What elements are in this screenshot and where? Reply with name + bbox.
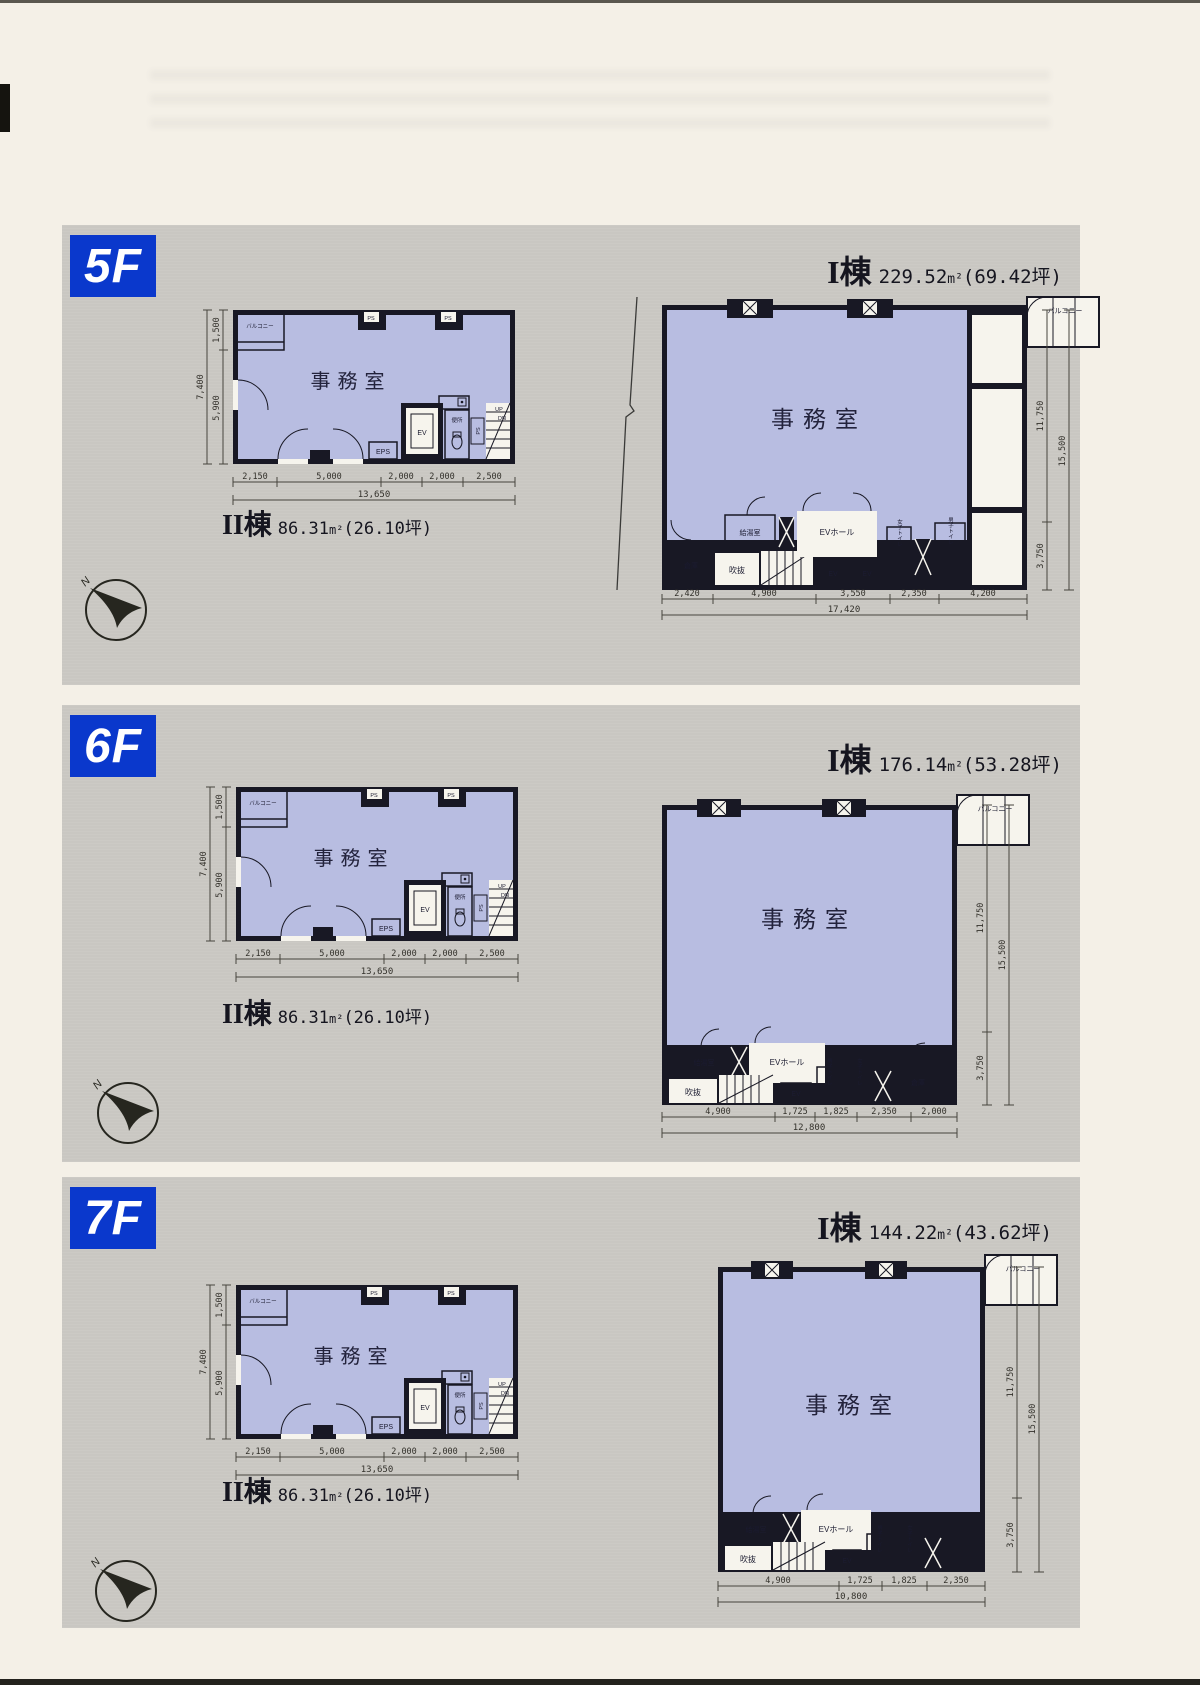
stairs <box>773 1542 825 1570</box>
elevator: EV <box>404 1378 446 1434</box>
elevator: EV <box>833 1550 861 1570</box>
compass-icon: N <box>90 1073 166 1149</box>
svg-text:2,500: 2,500 <box>479 949 505 959</box>
balcony-label: バルコニー <box>246 323 273 330</box>
dim-b2: 4,900 <box>751 589 777 599</box>
svg-text:EVホール: EVホール <box>819 1525 854 1534</box>
print-showthrough <box>150 58 1050 128</box>
dim-b5: 2,500 <box>476 472 502 482</box>
shaft-1 <box>779 517 794 547</box>
dim-left-5900: 5,900 <box>215 872 225 898</box>
elevator: EV <box>401 403 443 459</box>
right-room-3 <box>972 513 1022 585</box>
svg-text:PS: PS <box>479 1402 485 1410</box>
svg-text:給湯室: 給湯室 <box>694 1058 715 1067</box>
svg-text:1,500: 1,500 <box>215 1292 225 1318</box>
svg-text:2,500: 2,500 <box>479 1447 505 1457</box>
balcony-label: バルコニー <box>249 1298 276 1305</box>
ps-duct-1: PS <box>358 310 386 330</box>
shaft-2 <box>875 1071 891 1101</box>
svg-text:EVホール: EVホール <box>770 1058 805 1067</box>
floor-badge-7f: 7F <box>70 1187 156 1249</box>
svg-text:DN: DN <box>501 1391 509 1397</box>
wing2-area-unit: m² <box>329 523 343 537</box>
svg-text:EV: EV <box>791 1091 801 1098</box>
svg-text:2,150: 2,150 <box>245 1447 271 1457</box>
svg-text:EV: EV <box>862 571 872 578</box>
right-room-1 <box>972 315 1022 383</box>
svg-text:1,725: 1,725 <box>782 1107 808 1117</box>
vent-2 <box>822 799 866 817</box>
dim-b-total: 17,420 <box>828 605 861 615</box>
wing2-name: II棟 <box>222 510 272 541</box>
vent-2 <box>865 1261 907 1279</box>
svg-text:UP: UP <box>498 1382 506 1388</box>
wing1-floorplan-6f: バルコニー 事務室 給湯室 EVホール 吹抜 <box>567 755 1067 1140</box>
dim-b4: 2,000 <box>429 472 455 482</box>
svg-text:EPS: EPS <box>379 926 393 933</box>
office-label: 事務室 <box>761 906 857 932</box>
svg-text:4,900: 4,900 <box>765 1576 791 1586</box>
void-room: 吹抜 <box>715 553 759 585</box>
svg-text:7,400: 7,400 <box>199 1349 209 1375</box>
svg-text:PS: PS <box>479 904 485 912</box>
svg-text:EVホール: EVホール <box>820 528 855 537</box>
svg-text:PS: PS <box>367 316 375 322</box>
dim-left-5900: 5,900 <box>212 395 222 421</box>
page-bottom-edge <box>0 1679 1200 1685</box>
svg-text:13,650: 13,650 <box>361 967 394 977</box>
dim-b5: 4,200 <box>970 589 996 599</box>
wing2-area: 86.31 <box>278 519 329 539</box>
stairs: UP DN <box>489 1378 513 1434</box>
wing2-caption-5f: II棟86.31m²(26.10坪) <box>222 503 432 543</box>
balcony: バルコニー <box>1027 297 1099 347</box>
dim-b1: 2,420 <box>674 589 700 599</box>
vent-1 <box>697 799 741 817</box>
svg-text:便所: 便所 <box>451 416 463 424</box>
void-room: 吹抜 <box>725 1546 771 1570</box>
svg-text:EV: EV <box>842 1558 852 1565</box>
ps-duct-2: PS <box>438 787 466 807</box>
elevator: EV <box>404 880 446 936</box>
svg-text:2,000: 2,000 <box>391 1447 417 1457</box>
svg-text:EV: EV <box>420 1405 430 1412</box>
svg-text:PS: PS <box>447 793 455 799</box>
svg-text:PS: PS <box>476 427 482 435</box>
wing2-floorplan-6f: 1,500 5,900 7,400 バルコニー PS PS 事務室 <box>186 779 531 1014</box>
stairs: UP DN <box>486 403 510 459</box>
svg-text:5,000: 5,000 <box>319 1447 345 1457</box>
svg-text:EV: EV <box>417 430 427 437</box>
ps-duct-1: PS <box>361 787 389 807</box>
dim-left-1500: 1,500 <box>212 317 222 343</box>
balcony-label: バルコニー <box>978 805 1013 813</box>
dim-b2: 5,000 <box>316 472 342 482</box>
wing2-caption-7f: II棟86.31m²(26.10坪) <box>222 1470 432 1510</box>
shaft-1 <box>731 1047 747 1077</box>
svg-text:吹抜: 吹抜 <box>729 565 745 575</box>
office-label: 事務室 <box>311 370 392 393</box>
floor-panel-5f: 5F 1,500 5,900 7,400 バルコニー PS PS 事務室 <box>62 225 1080 685</box>
svg-text:給湯室: 給湯室 <box>746 1525 767 1534</box>
dim-left-7400: 7,400 <box>199 851 209 877</box>
dim-r1: 11,750 <box>1036 401 1046 432</box>
ps-duct-2: PS <box>435 310 463 330</box>
svg-text:吹抜: 吹抜 <box>685 1087 701 1097</box>
svg-text:11,750: 11,750 <box>976 903 986 934</box>
dim-b4: 2,350 <box>901 589 927 599</box>
svg-text:2,000: 2,000 <box>432 1447 458 1457</box>
vent-1 <box>727 299 773 318</box>
svg-text:男子トイレ: 男子トイレ <box>947 517 954 545</box>
svg-text:11,750: 11,750 <box>1006 1367 1016 1398</box>
compass-icon: N <box>88 1551 164 1627</box>
floor-badge-6f: 6F <box>70 715 156 777</box>
floor-panel-7f: 7F 1,500 5,900 7,400 バルコニー PS PS 事務室 <box>62 1177 1080 1628</box>
wing2-caption-6f: II棟86.31m²(26.10坪) <box>222 992 432 1032</box>
site-boundary <box>617 297 637 590</box>
dim-b3: 2,000 <box>388 472 414 482</box>
dim-b3: 3,550 <box>840 589 866 599</box>
elevator-2: EV <box>853 559 881 585</box>
svg-text:2,000: 2,000 <box>432 949 458 959</box>
svg-text:UP: UP <box>498 884 506 890</box>
stairs-up-label: UP <box>495 407 503 413</box>
dim-left-1500: 1,500 <box>215 794 225 820</box>
wing1-floorplan-7f: バルコニー 事務室 給湯室 EVホール 吹抜 <box>613 1217 1113 1607</box>
wing1-floorplan-5f: バルコニー 事務室 倉庫 吹抜 給湯室 <box>607 255 1107 625</box>
page-left-notch <box>0 84 10 132</box>
svg-text:12,800: 12,800 <box>793 1123 826 1133</box>
svg-text:15,500: 15,500 <box>1028 1404 1038 1435</box>
svg-text:倉庫: 倉庫 <box>911 1078 925 1087</box>
ps-duct-2: PS <box>438 1285 466 1305</box>
floor-badge-5f: 5F <box>70 235 156 297</box>
svg-text:3,750: 3,750 <box>1006 1522 1016 1548</box>
compass-icon: N <box>78 570 154 646</box>
balcony-label: バルコニー <box>1048 307 1083 315</box>
svg-text:便所: 便所 <box>454 893 466 901</box>
ps-duct-1: PS <box>361 1285 389 1305</box>
svg-text:便所: 便所 <box>454 1391 466 1399</box>
svg-text:2,000: 2,000 <box>921 1107 947 1117</box>
svg-text:2,000: 2,000 <box>391 949 417 959</box>
compass-north-label: N <box>79 575 93 589</box>
dim-r2: 3,750 <box>1036 543 1046 569</box>
svg-text:15,500: 15,500 <box>998 940 1008 971</box>
svg-text:女子トイレ: 女子トイレ <box>906 1524 913 1553</box>
svg-text:PS: PS <box>370 1291 378 1297</box>
svg-text:EPS: EPS <box>376 449 390 456</box>
dim-b-total: 13,650 <box>358 490 391 500</box>
svg-text:2,350: 2,350 <box>943 1576 969 1586</box>
svg-text:PS: PS <box>370 793 378 799</box>
void-room: 吹抜 <box>669 1079 717 1103</box>
balcony-label: バルコニー <box>1006 1265 1041 1273</box>
svg-text:1,825: 1,825 <box>823 1107 849 1117</box>
elevator-1: EV <box>819 559 847 585</box>
svg-text:2,350: 2,350 <box>871 1107 897 1117</box>
svg-text:PS: PS <box>447 1291 455 1297</box>
svg-text:2,150: 2,150 <box>245 949 271 959</box>
dim-b1: 2,150 <box>242 472 268 482</box>
svg-text:倉庫: 倉庫 <box>684 561 698 570</box>
balcony-label: バルコニー <box>249 800 276 807</box>
svg-text:吹抜: 吹抜 <box>740 1554 756 1564</box>
elevator: EV <box>781 1083 811 1103</box>
dim-left-7400: 7,400 <box>196 374 206 400</box>
shaft-2 <box>915 539 931 575</box>
svg-text:男子トイレ: 男子トイレ <box>876 1525 883 1553</box>
svg-text:男子トイレ: 男子トイレ <box>826 1058 833 1086</box>
svg-text:1,825: 1,825 <box>891 1576 917 1586</box>
svg-text:5,900: 5,900 <box>215 1370 225 1396</box>
shaft-1 <box>783 1514 799 1544</box>
svg-text:1,725: 1,725 <box>847 1576 873 1586</box>
svg-text:EV: EV <box>420 907 430 914</box>
vent-2 <box>847 299 893 318</box>
balcony: バルコニー <box>957 795 1029 845</box>
svg-text:5,000: 5,000 <box>319 949 345 959</box>
office-label: 事務室 <box>314 847 395 870</box>
office-label: 事務室 <box>314 1345 395 1368</box>
svg-text:4,900: 4,900 <box>705 1107 731 1117</box>
right-room-2 <box>972 389 1022 507</box>
svg-text:DN: DN <box>501 893 509 899</box>
svg-text:女子トイレ: 女子トイレ <box>896 518 903 547</box>
svg-text:10,800: 10,800 <box>835 1592 868 1602</box>
svg-text:3,750: 3,750 <box>976 1055 986 1081</box>
stairs: UP DN <box>489 880 513 936</box>
vent-1 <box>751 1261 793 1279</box>
brochure-page: 5F 1,500 5,900 7,400 バルコニー PS PS 事務室 <box>0 0 1200 1685</box>
svg-text:EV: EV <box>828 571 838 578</box>
wing2-tsubo: (26.10坪) <box>343 519 432 539</box>
svg-text:給湯室: 給湯室 <box>740 528 761 537</box>
office-label: 事務室 <box>771 406 867 432</box>
page-top-edge <box>0 0 1200 3</box>
office-label: 事務室 <box>805 1392 901 1418</box>
stairs <box>719 1075 773 1103</box>
floor-panel-6f: 6F 1,500 5,900 7,400 バルコニー PS PS 事務室 <box>62 705 1080 1162</box>
wing2-floorplan-5f: 1,500 5,900 7,400 バルコニー PS PS 事務室 <box>183 302 528 537</box>
compass-north-label: N <box>89 1556 103 1570</box>
dim-r3: 15,500 <box>1058 436 1068 467</box>
svg-text:PS: PS <box>444 316 452 322</box>
compass-north-label: N <box>91 1078 105 1092</box>
svg-text:EPS: EPS <box>379 1424 393 1431</box>
shaft-2 <box>925 1538 941 1568</box>
svg-text:女子トイレ: 女子トイレ <box>856 1057 863 1086</box>
stairs-dn-label: DN <box>498 416 506 422</box>
balcony: バルコニー <box>985 1255 1057 1305</box>
